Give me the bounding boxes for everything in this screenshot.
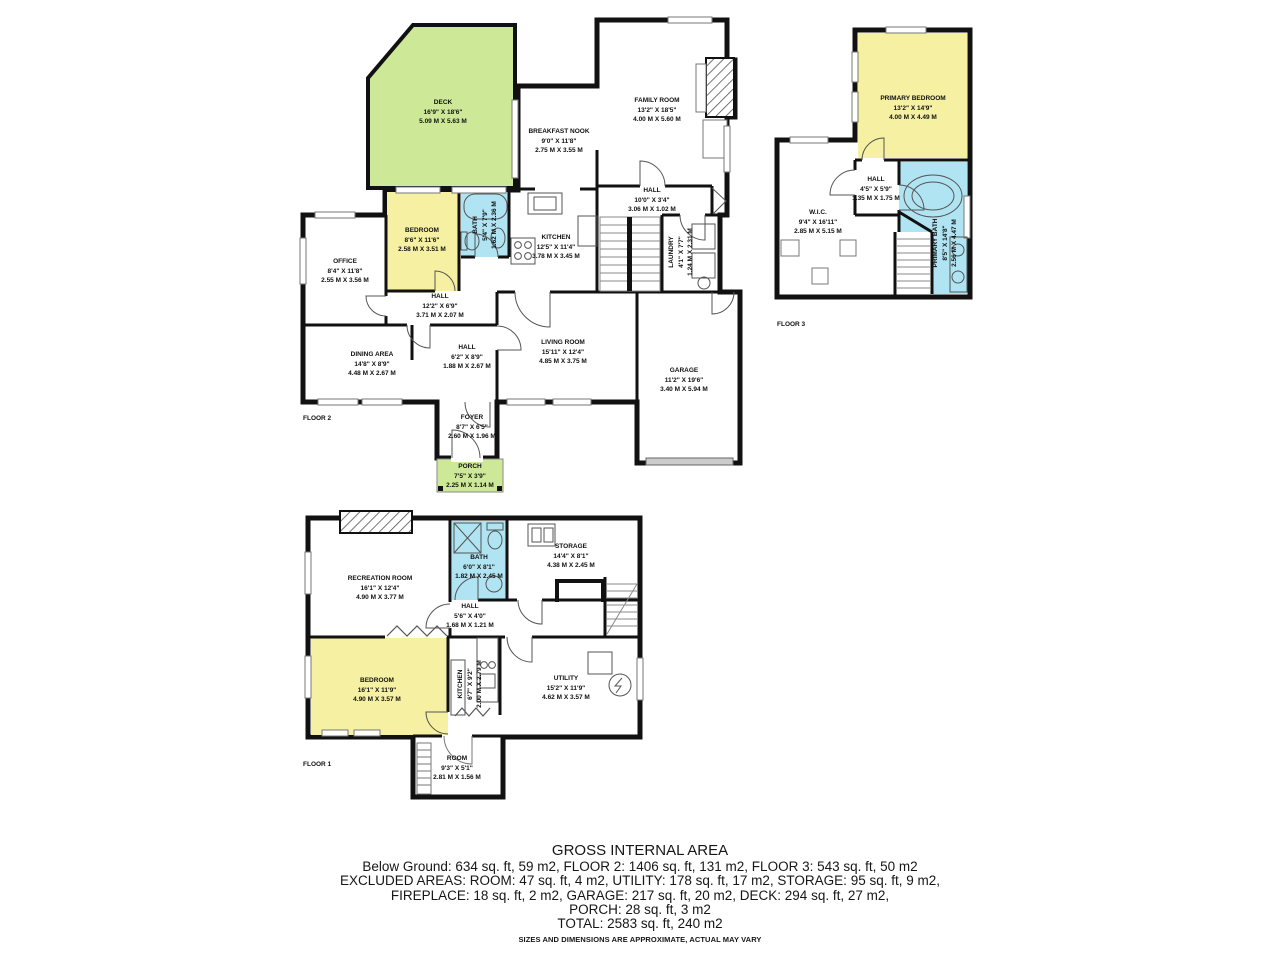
room-dims-ft: 14'4" X 8'1" xyxy=(547,551,595,561)
room-dims-ft: 8'4" X 11'8" xyxy=(321,266,369,276)
room-name: HALL xyxy=(446,602,494,612)
room-dims-ft: 12'2" X 6'9" xyxy=(416,301,464,311)
room-label-hall3: HALL 4'5" X 5'9" 1.35 M X 1.75 M xyxy=(852,175,900,204)
fireplace xyxy=(706,58,734,117)
room-dims-ft: 6'2" X 8'9" xyxy=(443,352,491,362)
room-name: PORCH xyxy=(446,462,494,472)
room-label-garage: GARAGE 11'2" X 19'6" 3.40 M X 5.94 M xyxy=(660,366,708,395)
summary-line-2: EXCLUDED AREAS: ROOM: 47 sq. ft, 4 m2, U… xyxy=(0,874,1280,888)
room-label-deck: DECK 16'9" X 18'6" 5.09 M X 5.63 M xyxy=(419,98,467,127)
room-dims-ft: 5'4" X 7'9" xyxy=(480,201,490,249)
room-dims-m: 2.56 M X 4.47 M xyxy=(950,219,960,268)
room-dims-ft: 8'6" X 11'6" xyxy=(398,235,446,245)
room-dims-ft: 9'0" X 11'8" xyxy=(528,136,589,146)
room-dims-ft: 13'2" X 14'9" xyxy=(880,103,945,113)
room-name: ROOM xyxy=(433,754,481,764)
porch-post xyxy=(497,486,502,491)
room-dims-m: 1.24 M X 2.31 M xyxy=(686,228,696,276)
room-label-kitchen1: KITCHEN 6'7" X 9'2" 2.00 M X 2.79 M xyxy=(456,660,485,708)
room-dims-ft: 9'4" X 16'11" xyxy=(794,217,842,227)
room-dims-m: 4.48 M X 2.67 M xyxy=(348,369,396,379)
floorplan-drawing xyxy=(0,0,1280,960)
room-dims-m: 4.38 M X 2.45 M xyxy=(547,561,595,571)
room-name: RECREATION ROOM xyxy=(348,574,413,584)
room-name: HALL xyxy=(443,343,491,353)
room-name: BEDROOM xyxy=(398,226,446,236)
room-name: KITCHEN xyxy=(532,233,580,243)
room-name: PRIMARY BATH xyxy=(931,219,941,268)
room-name: BREAKFAST NOOK xyxy=(528,127,589,137)
room-dims-ft: 15'2" X 11'9" xyxy=(542,683,590,693)
window-seat xyxy=(703,120,727,158)
room-dims-ft: 4'1" X 7'7" xyxy=(676,228,686,276)
room-dims-ft: 5'6" X 4'0" xyxy=(446,611,494,621)
room-label-hall-mid: HALL 12'2" X 6'9" 3.71 M X 2.07 M xyxy=(416,292,464,321)
summary-line-3: FIREPLACE: 18 sq. ft, 2 m2, GARAGE: 217 … xyxy=(0,889,1280,903)
room-name: FAMILY ROOM xyxy=(633,96,681,106)
room-dims-m: 3.06 M X 1.02 M xyxy=(628,205,676,215)
room-dims-ft: 7'5" X 3'9" xyxy=(446,471,494,481)
room-name: HALL xyxy=(852,175,900,185)
room-name: FOYER xyxy=(448,413,496,423)
room-dims-m: 1.62 M X 2.36 M xyxy=(490,201,500,249)
garage-door xyxy=(646,458,733,465)
room-label-porch: PORCH 7'5" X 3'9" 2.25 M X 1.14 M xyxy=(446,462,494,491)
room-name: BEDROOM xyxy=(353,676,401,686)
room-name: UTILITY xyxy=(542,674,590,684)
room-label-foyer: FOYER 8'7" X 6'5" 2.60 M X 1.96 M xyxy=(448,413,496,442)
porch-post xyxy=(438,486,443,491)
room-label-hall-upper: HALL 10'0" X 3'4" 3.06 M X 1.02 M xyxy=(628,186,676,215)
room-dims-ft: 11'2" X 19'6" xyxy=(660,375,708,385)
room-dims-m: 4.00 M X 5.60 M xyxy=(633,115,681,125)
room-label-primary-bath: PRIMARY BATH 8'5" X 14'8" 2.56 M X 4.47 … xyxy=(931,219,960,268)
room-label-bedroom2: BEDROOM 8'6" X 11'6" 2.58 M X 3.51 M xyxy=(398,226,446,255)
room-dims-ft: 8'5" X 14'8" xyxy=(940,219,950,268)
room-dims-m: 2.58 M X 3.51 M xyxy=(398,245,446,255)
room-label-bath1: BATH 6'0" X 8'1" 1.82 M X 2.45 M xyxy=(455,553,503,582)
room-dims-ft: 10'0" X 3'4" xyxy=(628,195,676,205)
room-dims-m: 3.78 M X 3.45 M xyxy=(532,252,580,262)
room-name: BATH xyxy=(455,553,503,563)
room-label-bedroom1: BEDROOM 16'1" X 11'9" 4.90 M X 3.57 M xyxy=(353,676,401,705)
area-summary: GROSS INTERNAL AREA Below Ground: 634 sq… xyxy=(0,842,1280,944)
room-label-wic: W.I.C. 9'4" X 16'11" 2.85 M X 5.15 M xyxy=(794,208,842,237)
room-dims-m: 2.55 M X 3.56 M xyxy=(321,276,369,286)
room-dims-ft: 14'8" X 8'9" xyxy=(348,359,396,369)
room-label-room: ROOM 9'3" X 5'1" 2.81 M X 1.56 M xyxy=(433,754,481,783)
room-label-family-room: FAMILY ROOM 13'2" X 18'5" 4.00 M X 5.60 … xyxy=(633,96,681,125)
room-name: LIVING ROOM xyxy=(539,338,587,348)
room-dims-ft: 8'7" X 6'5" xyxy=(448,422,496,432)
room-dims-m: 1.35 M X 1.75 M xyxy=(852,194,900,204)
room-dims-ft: 16'1" X 12'4" xyxy=(348,583,413,593)
room-label-breakfast-nook: BREAKFAST NOOK 9'0" X 11'8" 2.75 M X 3.5… xyxy=(528,127,589,156)
room-dims-m: 1.68 M X 1.21 M xyxy=(446,621,494,631)
room-label-primary-bedroom: PRIMARY BEDROOM 13'2" X 14'9" 4.00 M X 4… xyxy=(880,94,945,123)
room-dims-ft: 12'5" X 11'4" xyxy=(532,242,580,252)
room-label-storage: STORAGE 14'4" X 8'1" 4.38 M X 2.45 M xyxy=(547,542,595,571)
room-dims-ft: 6'0" X 8'1" xyxy=(455,562,503,572)
room-name: HALL xyxy=(628,186,676,196)
room-label-office: OFFICE 8'4" X 11'8" 2.55 M X 3.56 M xyxy=(321,257,369,286)
room-dims-m: 2.81 M X 1.56 M xyxy=(433,773,481,783)
room-name: BATH xyxy=(471,201,481,249)
summary-line-4: PORCH: 28 sq. ft, 3 m2 xyxy=(0,903,1280,917)
room-dims-ft: 16'1" X 11'9" xyxy=(353,685,401,695)
room-dims-ft: 9'3" X 5'1" xyxy=(433,763,481,773)
room-dims-ft: 16'9" X 18'6" xyxy=(419,107,467,117)
floor2-tag: FLOOR 2 xyxy=(303,415,331,422)
room-dims-m: 1.82 M X 2.45 M xyxy=(455,572,503,582)
room-name: HALL xyxy=(416,292,464,302)
room-dims-ft: 13'2" X 18'5" xyxy=(633,105,681,115)
room-dims-ft: 6'7" X 9'2" xyxy=(465,660,475,708)
room-dims-m: 4.90 M X 3.57 M xyxy=(353,695,401,705)
room-label-hall1: HALL 5'6" X 4'0" 1.68 M X 1.21 M xyxy=(446,602,494,631)
room-name: W.I.C. xyxy=(794,208,842,218)
room-dims-m: 5.09 M X 5.63 M xyxy=(419,117,467,127)
room-name: PRIMARY BEDROOM xyxy=(880,94,945,104)
room-dims-m: 4.62 M X 3.57 M xyxy=(542,693,590,703)
skylight xyxy=(340,511,412,533)
room-dims-m: 2.25 M X 1.14 M xyxy=(446,481,494,491)
room-name: LAUNDRY xyxy=(667,228,677,276)
room-label-bath2: BATH 5'4" X 7'9" 1.62 M X 2.36 M xyxy=(471,201,500,249)
room-label-hall-lower: HALL 6'2" X 8'9" 1.88 M X 2.67 M xyxy=(443,343,491,372)
room-name: STORAGE xyxy=(547,542,595,552)
room-dims-ft: 4'5" X 5'9" xyxy=(852,184,900,194)
room-dims-m: 2.85 M X 5.15 M xyxy=(794,227,842,237)
room-dims-m: 4.85 M X 3.75 M xyxy=(539,357,587,367)
floor3-tag: FLOOR 3 xyxy=(777,321,805,328)
summary-disclaimer: SIZES AND DIMENSIONS ARE APPROXIMATE, AC… xyxy=(0,935,1280,944)
room-label-laundry: LAUNDRY 4'1" X 7'7" 1.24 M X 2.31 M xyxy=(667,228,696,276)
room-dims-ft: 15'11" X 12'4" xyxy=(539,347,587,357)
room-label-kitchen2: KITCHEN 12'5" X 11'4" 3.78 M X 3.45 M xyxy=(532,233,580,262)
room-dims-m: 1.88 M X 2.67 M xyxy=(443,362,491,372)
room-dims-m: 4.00 M X 4.49 M xyxy=(880,113,945,123)
room-name: DECK xyxy=(419,98,467,108)
room-dims-m: 2.60 M X 1.96 M xyxy=(448,432,496,442)
room-label-dining: DINING AREA 14'8" X 8'9" 4.48 M X 2.67 M xyxy=(348,350,396,379)
room-dims-m: 2.00 M X 2.79 M xyxy=(475,660,485,708)
room-name: KITCHEN xyxy=(456,660,466,708)
room-dims-m: 4.90 M X 3.77 M xyxy=(348,593,413,603)
room-dims-m: 2.75 M X 3.55 M xyxy=(528,146,589,156)
room-name: DINING AREA xyxy=(348,350,396,360)
room-label-living: LIVING ROOM 15'11" X 12'4" 4.85 M X 3.75… xyxy=(539,338,587,367)
room-dims-m: 3.71 M X 2.07 M xyxy=(416,311,464,321)
room-name: OFFICE xyxy=(321,257,369,267)
summary-line-1: Below Ground: 634 sq. ft, 59 m2, FLOOR 2… xyxy=(0,860,1280,874)
room-name: GARAGE xyxy=(660,366,708,376)
fireplace-hearth xyxy=(696,64,706,112)
stair-rail xyxy=(627,217,632,291)
room-label-utility: UTILITY 15'2" X 11'9" 4.62 M X 3.57 M xyxy=(542,674,590,703)
room-label-recreation: RECREATION ROOM 16'1" X 12'4" 4.90 M X 3… xyxy=(348,574,413,603)
floor1-tag: FLOOR 1 xyxy=(303,761,331,768)
summary-total: TOTAL: 2583 sq. ft, 240 m2 xyxy=(0,917,1280,931)
summary-title: GROSS INTERNAL AREA xyxy=(0,842,1280,859)
room-dims-m: 3.40 M X 5.94 M xyxy=(660,385,708,395)
